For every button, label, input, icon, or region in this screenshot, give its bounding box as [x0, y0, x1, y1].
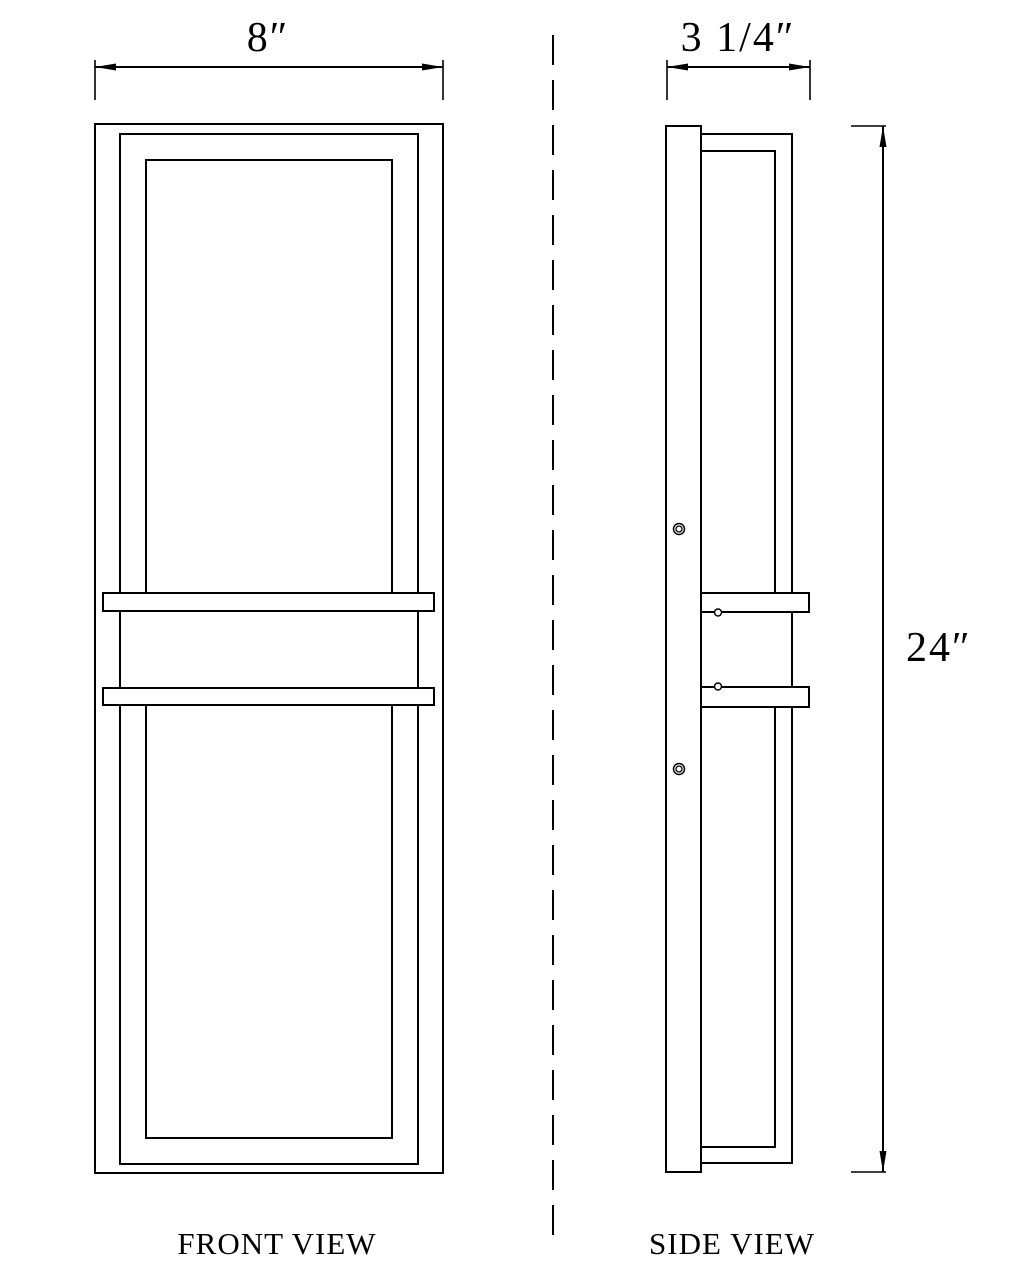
dimension-front-width: 8″	[95, 15, 443, 100]
drawing-canvas: 8″ 3 1/4″ 24″ FRONT VIEW SIDE VIEW	[0, 0, 1024, 1280]
arrow-down-icon	[880, 1151, 887, 1172]
side-view	[666, 126, 809, 1172]
side-depth-dim-label: 3 1/4″	[681, 15, 796, 61]
mounting-screw-bottom	[674, 764, 685, 775]
front-cross-bar-top	[103, 593, 434, 611]
arrow-left-icon	[95, 64, 116, 71]
set-screw-bottom	[715, 683, 722, 690]
mounting-screw-top	[674, 524, 685, 535]
side-view-label: SIDE VIEW	[649, 1226, 815, 1261]
arrow-up-icon	[880, 126, 887, 147]
front-glass-panel-upper	[146, 160, 392, 593]
arrow-right-icon	[789, 64, 810, 71]
front-glass-panel-lower	[146, 704, 392, 1138]
dimension-side-depth: 3 1/4″	[667, 15, 810, 100]
technical-drawing: 8″ 3 1/4″ 24″ FRONT VIEW SIDE VIEW	[0, 0, 1024, 1280]
front-width-dim-label: 8″	[247, 15, 290, 61]
front-cross-bar-bottom	[103, 688, 434, 705]
front-view-label: FRONT VIEW	[177, 1226, 376, 1261]
height-dim-label: 24″	[906, 625, 972, 671]
side-back-plate	[666, 126, 701, 1172]
dimension-height: 24″	[851, 126, 972, 1172]
set-screw-top	[715, 609, 722, 616]
arrow-right-icon	[422, 64, 443, 71]
side-body	[701, 134, 792, 1163]
arrow-left-icon	[667, 64, 688, 71]
front-view	[95, 124, 443, 1173]
